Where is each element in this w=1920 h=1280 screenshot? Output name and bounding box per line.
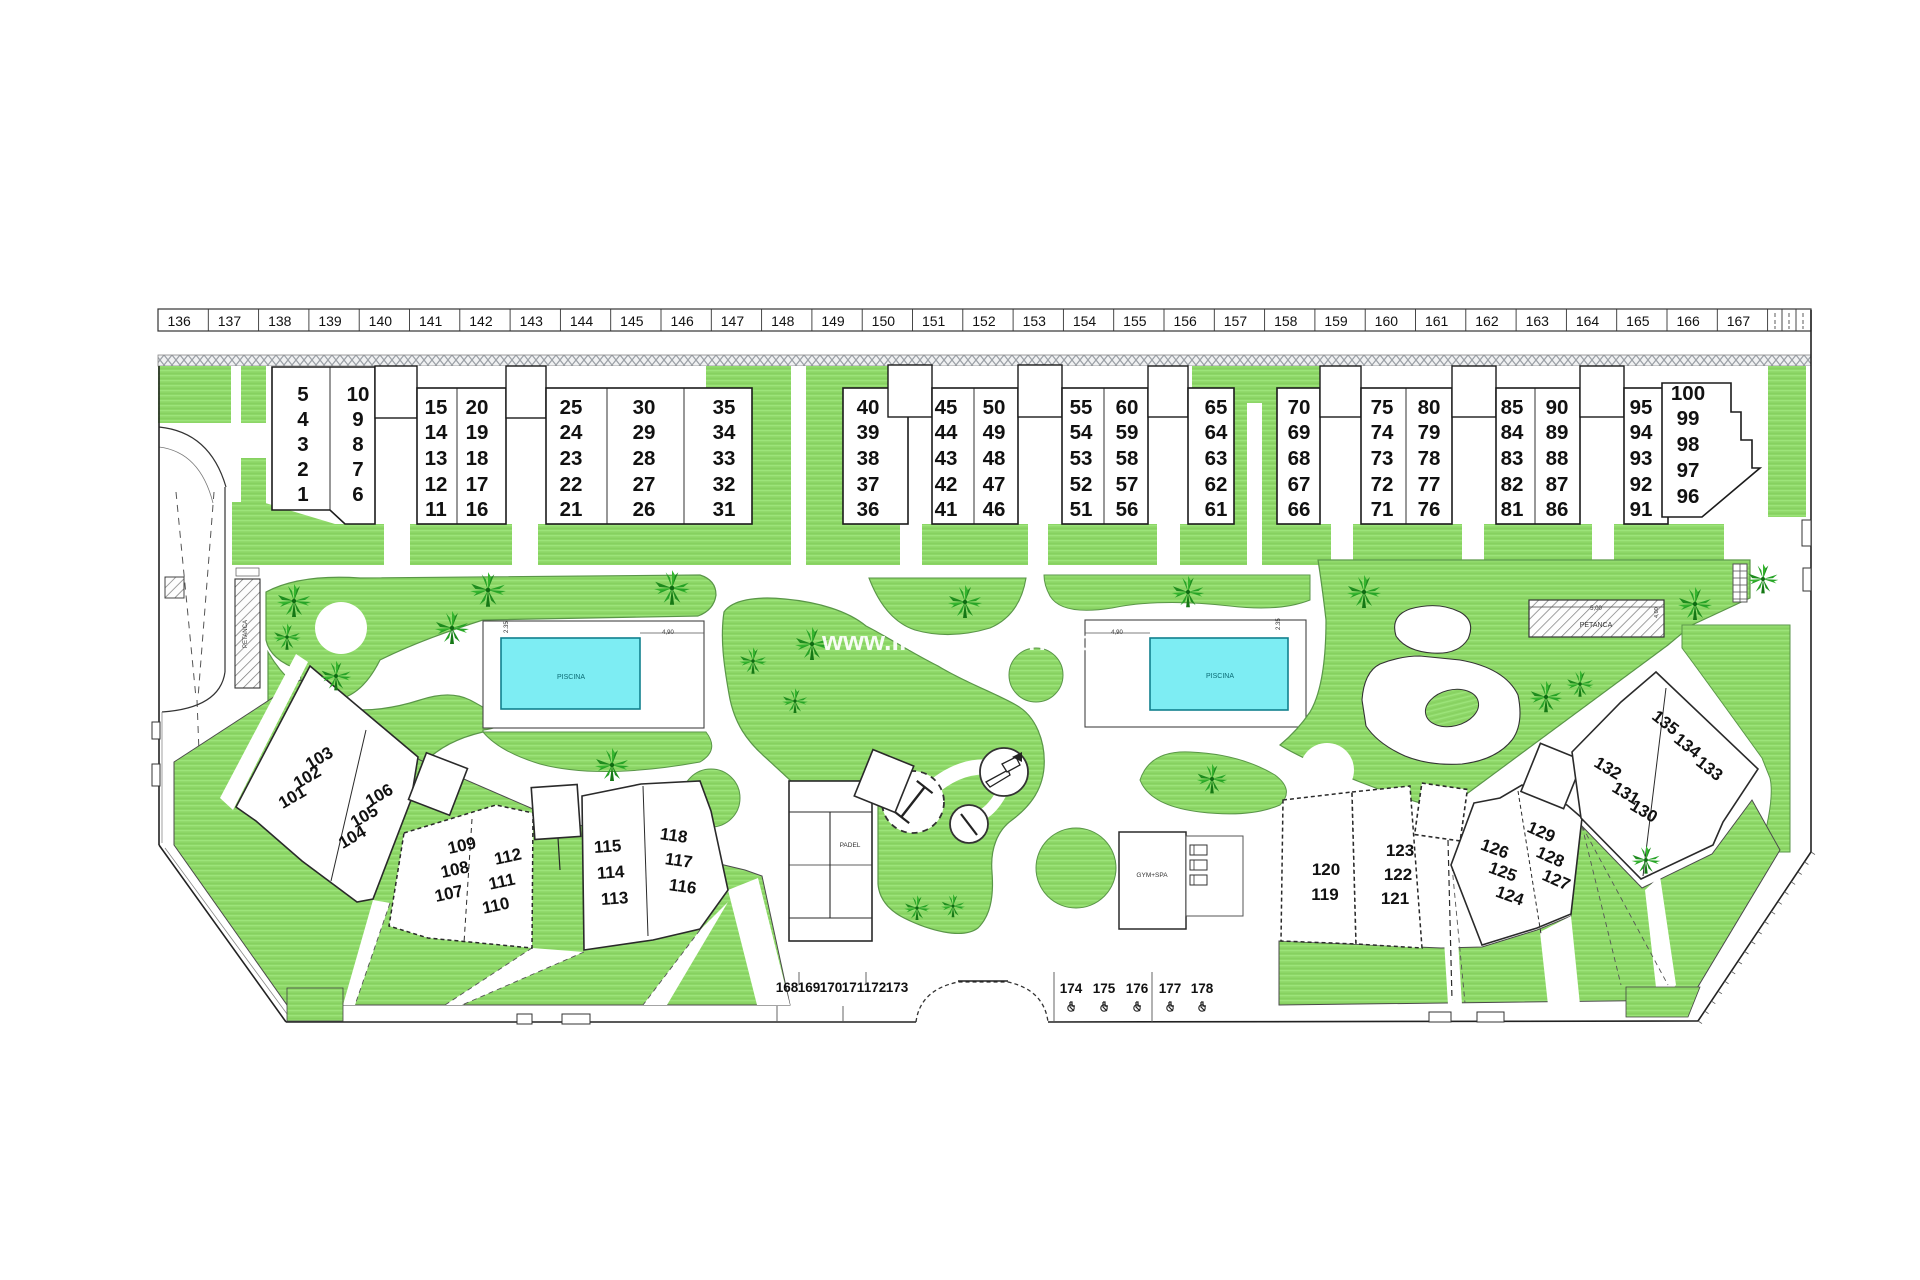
svg-text:173: 173: [886, 980, 909, 995]
svg-text:150: 150: [872, 313, 896, 329]
svg-text:141: 141: [419, 313, 443, 329]
svg-text:2.35: 2.35: [1276, 618, 1282, 630]
svg-text:176: 176: [1126, 981, 1149, 996]
svg-text:84: 84: [1501, 421, 1524, 444]
svg-text:138: 138: [268, 313, 292, 329]
svg-text:80: 80: [1418, 396, 1441, 419]
svg-text:168: 168: [776, 980, 799, 995]
svg-text:79: 79: [1418, 421, 1441, 444]
svg-text:2.35: 2.35: [504, 621, 510, 633]
svg-text:56: 56: [1116, 498, 1139, 521]
svg-text:76: 76: [1418, 498, 1441, 521]
svg-text:GYM+SPA: GYM+SPA: [1136, 872, 1168, 879]
svg-text:46: 46: [983, 498, 1006, 521]
svg-text:157: 157: [1224, 313, 1248, 329]
svg-text:120: 120: [1312, 860, 1340, 879]
svg-text:116: 116: [668, 875, 698, 898]
svg-text:3: 3: [297, 433, 308, 456]
svg-text:54: 54: [1070, 421, 1093, 444]
svg-text:34: 34: [713, 421, 736, 444]
svg-text:74: 74: [1371, 421, 1394, 444]
svg-text:88: 88: [1546, 447, 1569, 470]
svg-text:119: 119: [1311, 885, 1338, 904]
svg-text:145: 145: [620, 313, 644, 329]
svg-text:117: 117: [664, 849, 694, 872]
svg-text:23: 23: [560, 447, 583, 470]
svg-text:43: 43: [935, 447, 958, 470]
svg-text:123: 123: [1386, 841, 1414, 860]
svg-text:24: 24: [560, 421, 583, 444]
svg-text:48: 48: [983, 447, 1006, 470]
svg-text:35: 35: [713, 396, 736, 419]
svg-text:77: 77: [1418, 473, 1441, 496]
svg-text:159: 159: [1324, 313, 1348, 329]
svg-text:94: 94: [1630, 421, 1653, 444]
svg-text:30: 30: [633, 396, 656, 419]
svg-text:28: 28: [633, 447, 656, 470]
svg-text:140: 140: [369, 313, 393, 329]
svg-text:95: 95: [1630, 396, 1653, 419]
svg-text:21: 21: [560, 498, 583, 521]
svg-text:137: 137: [218, 313, 242, 329]
svg-text:166: 166: [1676, 313, 1700, 329]
svg-text:163: 163: [1526, 313, 1550, 329]
svg-text:2: 2: [297, 458, 308, 481]
svg-text:45: 45: [935, 396, 958, 419]
svg-text:25: 25: [560, 396, 583, 419]
svg-text:83: 83: [1501, 447, 1524, 470]
svg-text:147: 147: [721, 313, 745, 329]
svg-text:59: 59: [1116, 421, 1139, 444]
svg-text:58: 58: [1116, 447, 1139, 470]
svg-text:153: 153: [1023, 313, 1047, 329]
svg-text:19: 19: [466, 421, 489, 444]
svg-text:26: 26: [633, 498, 656, 521]
svg-text:51: 51: [1070, 498, 1093, 521]
svg-text:122: 122: [1384, 865, 1412, 884]
svg-text:155: 155: [1123, 313, 1147, 329]
svg-text:14: 14: [425, 421, 448, 444]
svg-text:71: 71: [1371, 498, 1394, 521]
svg-text:65: 65: [1205, 396, 1228, 419]
svg-text:86: 86: [1546, 498, 1569, 521]
svg-text:57: 57: [1116, 473, 1139, 496]
svg-text:8: 8: [352, 433, 363, 456]
svg-text:1: 1: [297, 483, 308, 506]
svg-text:36: 36: [857, 498, 880, 521]
svg-text:33: 33: [713, 447, 736, 470]
svg-text:81: 81: [1501, 498, 1524, 521]
svg-text:99: 99: [1677, 407, 1700, 430]
svg-text:169: 169: [798, 980, 821, 995]
svg-text:175: 175: [1093, 981, 1116, 996]
svg-text:67: 67: [1288, 473, 1311, 496]
svg-text:142: 142: [469, 313, 493, 329]
svg-text:49: 49: [983, 421, 1006, 444]
svg-text:178: 178: [1191, 981, 1214, 996]
svg-text:156: 156: [1173, 313, 1197, 329]
svg-text:151: 151: [922, 313, 946, 329]
svg-text:70: 70: [1288, 396, 1311, 419]
svg-text:75: 75: [1371, 396, 1394, 419]
svg-text:9: 9: [352, 408, 363, 431]
svg-text:82: 82: [1501, 473, 1524, 496]
svg-text:152: 152: [972, 313, 996, 329]
svg-text:177: 177: [1159, 981, 1182, 996]
svg-text:www.immo-tenerife.com: www.immo-tenerife.com: [821, 626, 1133, 656]
svg-text:78: 78: [1418, 447, 1441, 470]
svg-text:68: 68: [1288, 447, 1311, 470]
svg-text:162: 162: [1475, 313, 1499, 329]
svg-text:90: 90: [1546, 396, 1569, 419]
svg-text:37: 37: [857, 473, 880, 496]
svg-text:PETANCA: PETANCA: [243, 620, 249, 648]
svg-text:115: 115: [593, 836, 622, 857]
svg-text:52: 52: [1070, 473, 1093, 496]
svg-text:41: 41: [935, 498, 958, 521]
svg-text:PADEL: PADEL: [840, 842, 861, 849]
svg-text:64: 64: [1205, 421, 1228, 444]
svg-text:100: 100: [1671, 382, 1705, 405]
svg-text:172: 172: [864, 980, 887, 995]
svg-text:13: 13: [425, 447, 448, 470]
svg-text:32: 32: [713, 473, 736, 496]
svg-text:148: 148: [771, 313, 795, 329]
svg-text:69: 69: [1288, 421, 1311, 444]
svg-text:139: 139: [318, 313, 342, 329]
svg-text:31: 31: [713, 498, 736, 521]
svg-text:73: 73: [1371, 447, 1394, 470]
svg-text:96: 96: [1677, 485, 1700, 508]
svg-text:20: 20: [466, 396, 489, 419]
svg-text:40: 40: [857, 396, 880, 419]
svg-text:136: 136: [167, 313, 191, 329]
svg-text:PISCINA: PISCINA: [1206, 673, 1234, 680]
svg-text:87: 87: [1546, 473, 1569, 496]
svg-text:61: 61: [1205, 498, 1228, 521]
svg-text:4,00: 4,00: [1654, 607, 1660, 618]
svg-text:60: 60: [1116, 396, 1139, 419]
svg-text:6: 6: [352, 483, 363, 506]
svg-text:50: 50: [983, 396, 1006, 419]
svg-text:18: 18: [466, 447, 489, 470]
svg-text:121: 121: [1381, 889, 1409, 908]
svg-text:16: 16: [466, 498, 489, 521]
svg-text:15: 15: [425, 396, 448, 419]
svg-text:44: 44: [935, 421, 958, 444]
svg-text:92: 92: [1630, 473, 1653, 496]
svg-text:113: 113: [600, 888, 629, 909]
svg-text:160: 160: [1375, 313, 1399, 329]
svg-text:98: 98: [1677, 433, 1700, 456]
svg-text:10: 10: [347, 383, 370, 406]
svg-text:62: 62: [1205, 473, 1228, 496]
svg-text:66: 66: [1288, 498, 1311, 521]
svg-text:161: 161: [1425, 313, 1449, 329]
svg-text:PISCINA: PISCINA: [557, 674, 585, 681]
svg-text:12: 12: [425, 473, 448, 496]
svg-text:114: 114: [596, 862, 625, 883]
svg-text:39: 39: [857, 421, 880, 444]
svg-text:17: 17: [466, 473, 489, 496]
svg-text:42: 42: [935, 473, 958, 496]
svg-text:47: 47: [983, 473, 1006, 496]
svg-text:118: 118: [659, 824, 689, 847]
svg-text:7: 7: [352, 458, 363, 481]
svg-text:27: 27: [633, 473, 656, 496]
svg-text:165: 165: [1626, 313, 1650, 329]
svg-text:158: 158: [1274, 313, 1298, 329]
svg-text:55: 55: [1070, 396, 1093, 419]
svg-text:174: 174: [1060, 981, 1083, 996]
svg-text:5: 5: [297, 383, 308, 406]
svg-text:63: 63: [1205, 447, 1228, 470]
svg-text:53: 53: [1070, 447, 1093, 470]
svg-text:170: 170: [820, 980, 843, 995]
svg-text:29: 29: [633, 421, 656, 444]
svg-text:149: 149: [821, 313, 845, 329]
svg-text:164: 164: [1576, 313, 1600, 329]
svg-text:PETANCA: PETANCA: [1580, 622, 1613, 629]
svg-text:22: 22: [560, 473, 583, 496]
svg-text:85: 85: [1501, 396, 1524, 419]
svg-text:72: 72: [1371, 473, 1394, 496]
svg-text:171: 171: [842, 980, 865, 995]
svg-text:97: 97: [1677, 459, 1700, 482]
svg-text:144: 144: [570, 313, 594, 329]
svg-text:93: 93: [1630, 447, 1653, 470]
svg-text:167: 167: [1727, 313, 1751, 329]
svg-text:143: 143: [520, 313, 544, 329]
svg-text:91: 91: [1630, 498, 1653, 521]
svg-text:4: 4: [297, 408, 309, 431]
svg-text:154: 154: [1073, 313, 1097, 329]
svg-text:89: 89: [1546, 421, 1569, 444]
svg-text:11: 11: [425, 498, 447, 521]
svg-text:146: 146: [670, 313, 694, 329]
svg-text:38: 38: [857, 447, 880, 470]
